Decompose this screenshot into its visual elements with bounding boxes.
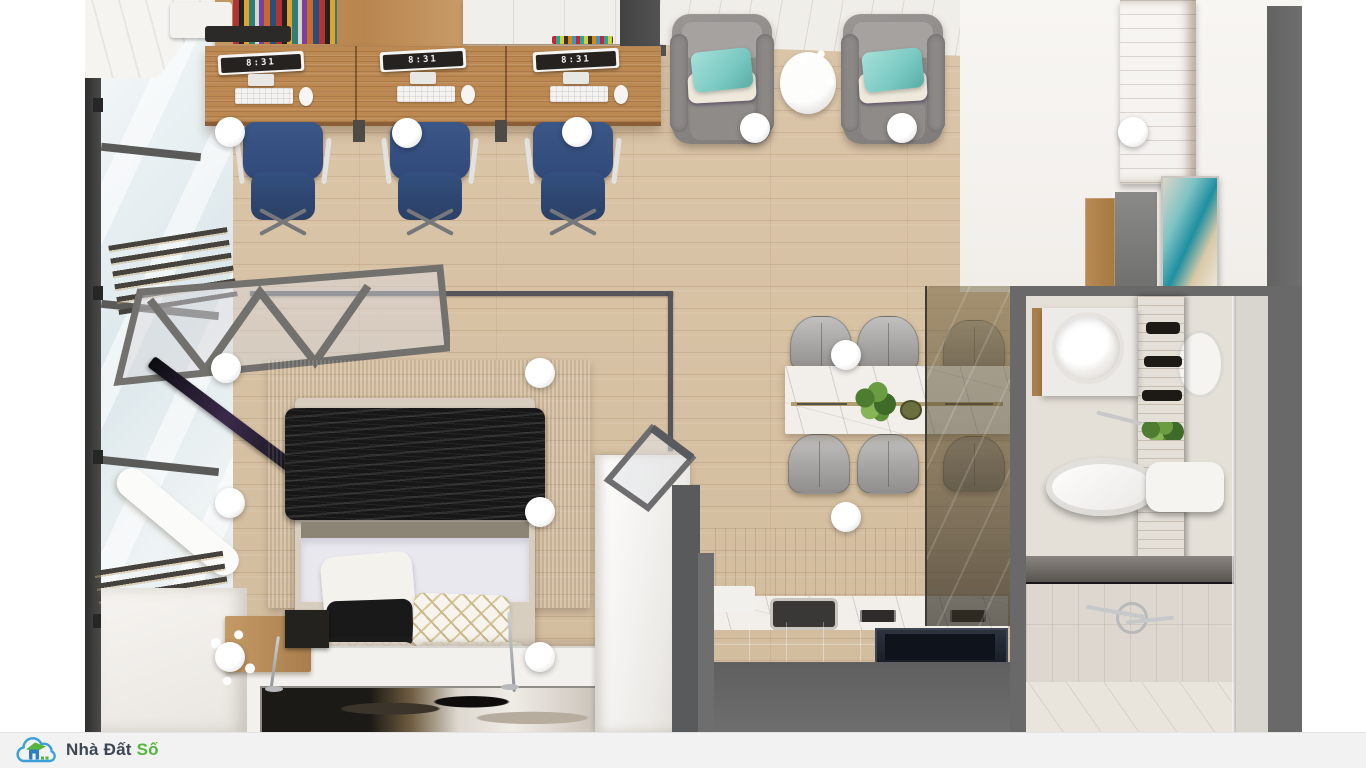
desk-leg bbox=[495, 120, 507, 142]
monitor-3-screen: 8:31 bbox=[536, 50, 617, 69]
reading-lamp-left-base bbox=[265, 686, 283, 692]
monitor-3-stand bbox=[563, 72, 589, 84]
keyboard-2 bbox=[397, 86, 455, 102]
centerpiece-plant bbox=[850, 382, 900, 422]
teal-throw-pillow bbox=[690, 47, 754, 93]
bathroom bbox=[1010, 286, 1302, 732]
ceiling-lamp bbox=[215, 117, 245, 147]
toiletry-bottle bbox=[1146, 322, 1180, 334]
toilet-tank bbox=[1146, 462, 1224, 512]
brand-logo: Nhà Đất Số bbox=[14, 734, 159, 766]
desk-leg bbox=[353, 120, 365, 142]
keyboard-1 bbox=[235, 88, 293, 104]
potted-plant bbox=[785, 40, 845, 110]
ceiling-lamp bbox=[831, 340, 861, 370]
cabinet-wall-column bbox=[672, 485, 700, 732]
mouse-3 bbox=[614, 85, 628, 104]
shower-glass-edge bbox=[1232, 296, 1236, 732]
kitchen-bottom-wall bbox=[712, 662, 1010, 732]
window-bracket bbox=[93, 450, 103, 464]
toiletry-bottle bbox=[1144, 356, 1182, 367]
desk-organizer-tray bbox=[205, 26, 291, 42]
dark-counter-basin bbox=[875, 628, 1008, 666]
reading-lamp-right-base bbox=[501, 684, 519, 690]
toilet-bowl bbox=[1046, 458, 1158, 516]
window-bracket bbox=[93, 286, 103, 300]
ceiling-lamp bbox=[525, 642, 555, 672]
power-socket bbox=[860, 610, 896, 622]
cabinet-doors bbox=[1085, 198, 1115, 292]
round-wash-basin bbox=[1052, 312, 1124, 384]
wood-wardrobe bbox=[1120, 0, 1196, 184]
ceiling-lamp bbox=[740, 113, 770, 143]
mirror-strip bbox=[1026, 556, 1234, 584]
bathroom-back-wall bbox=[1234, 296, 1268, 732]
bathroom-plant-sprig bbox=[1134, 422, 1190, 440]
bathroom-interior bbox=[1026, 296, 1268, 732]
desk-seam bbox=[355, 46, 357, 122]
ceiling-lamp bbox=[392, 118, 422, 148]
window-bracket bbox=[93, 98, 103, 112]
ceiling-lamp bbox=[215, 488, 245, 518]
watermark-bar bbox=[0, 732, 1366, 768]
ceiling-lamp bbox=[215, 642, 245, 672]
black-blanket bbox=[285, 408, 545, 520]
monitor-2-clock: 8:31 bbox=[408, 54, 438, 66]
brand-name: Nhà Đất Số bbox=[66, 740, 159, 760]
desk-seam bbox=[505, 46, 507, 122]
monitor-2-stand bbox=[410, 72, 436, 84]
wall-artwork bbox=[1161, 176, 1219, 296]
kitchen-side-wall bbox=[698, 553, 714, 732]
open-glass-lid bbox=[590, 420, 700, 515]
tinted-glass-partition bbox=[925, 286, 1013, 626]
dining-chair bbox=[857, 316, 919, 372]
mouse-1 bbox=[299, 87, 313, 106]
nightstand-box bbox=[285, 610, 329, 648]
ceiling-lamp bbox=[562, 117, 592, 147]
apartment-render: 8:31 8:31 8:31 bbox=[0, 0, 1366, 768]
monitor-1-screen: 8:31 bbox=[221, 53, 302, 72]
dining-chair bbox=[857, 434, 919, 494]
colored-pencils bbox=[552, 36, 613, 44]
serving-plate bbox=[900, 400, 922, 420]
teal-throw-pillow bbox=[861, 47, 925, 93]
ceiling-lamp bbox=[525, 358, 555, 388]
monitor-1-stand bbox=[248, 74, 274, 86]
dining-chair bbox=[788, 434, 850, 494]
ceiling-lamp bbox=[1118, 117, 1148, 147]
cutlery bbox=[797, 403, 847, 405]
mouse-2 bbox=[461, 85, 475, 104]
ceiling-lamp bbox=[887, 113, 917, 143]
monitor-2-screen: 8:31 bbox=[383, 50, 464, 69]
ceiling-lamp bbox=[525, 497, 555, 527]
toiletry-bottle bbox=[1142, 390, 1182, 401]
blanket-fold bbox=[301, 522, 529, 538]
towel-bar bbox=[1096, 410, 1142, 425]
concrete-pillar bbox=[1115, 192, 1157, 292]
abstract-floor-art bbox=[260, 686, 602, 732]
office-chair-1 bbox=[243, 122, 323, 226]
brand-name-primary: Nhà Đất bbox=[66, 740, 132, 759]
cloud-house-icon bbox=[14, 734, 60, 766]
keyboard-3 bbox=[550, 86, 608, 102]
brand-name-accent: Số bbox=[137, 740, 159, 759]
monitor-1-clock: 8:31 bbox=[246, 57, 276, 69]
ceiling-lamp bbox=[831, 502, 861, 532]
apartment-scene: 8:31 8:31 8:31 bbox=[85, 0, 1302, 732]
monitor-3-clock: 8:31 bbox=[561, 54, 591, 66]
ceiling-lamp bbox=[211, 353, 241, 383]
bathroom-floor-tiles bbox=[1026, 682, 1234, 732]
